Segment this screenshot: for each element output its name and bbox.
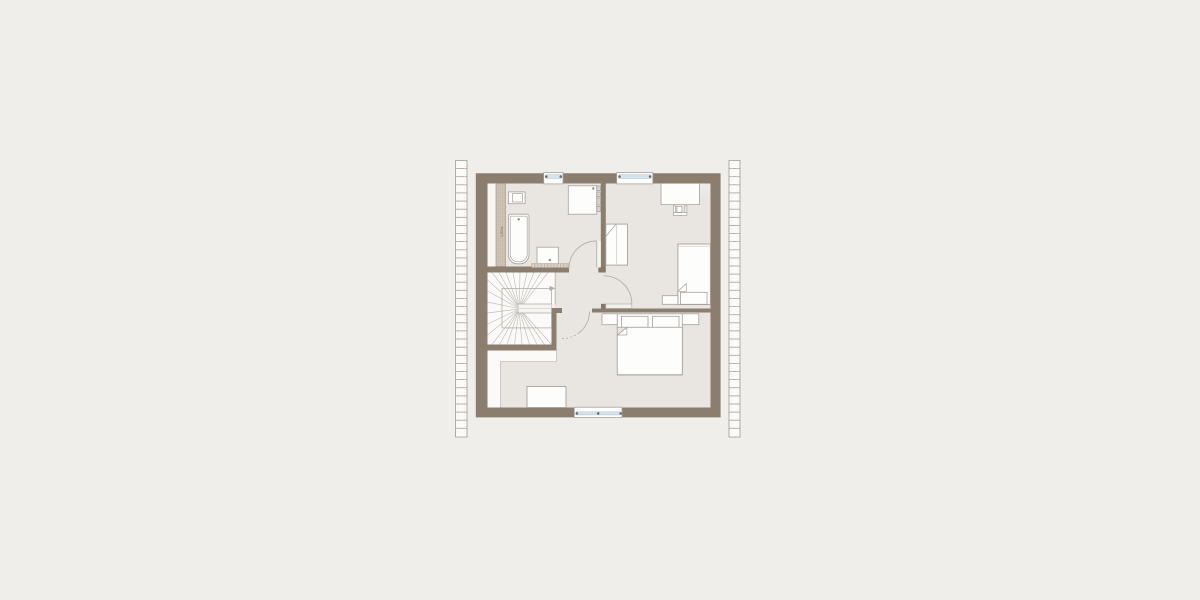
svg-text:1,50 m: 1,50 m [500, 226, 504, 237]
